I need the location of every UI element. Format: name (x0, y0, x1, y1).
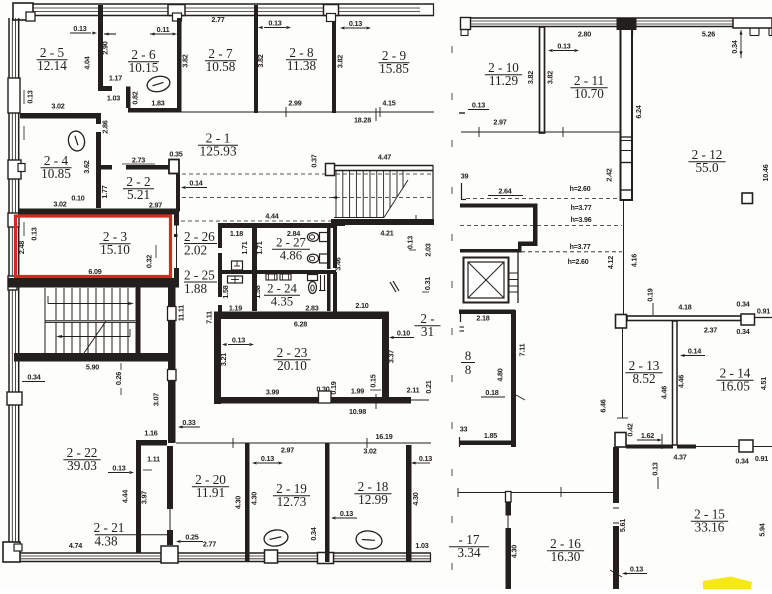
svg-text:0.13: 0.13 (630, 565, 643, 574)
svg-text:2.97: 2.97 (149, 201, 162, 210)
svg-text:1.19: 1.19 (229, 304, 242, 313)
svg-text:0.10: 0.10 (71, 194, 84, 203)
svg-text:2.97: 2.97 (493, 118, 506, 127)
svg-text:4.04: 4.04 (83, 56, 92, 69)
svg-text:4.46: 4.46 (677, 375, 686, 388)
svg-text:8.52: 8.52 (632, 371, 655, 386)
svg-text:3.82: 3.82 (256, 54, 265, 67)
svg-text:4.12: 4.12 (606, 256, 615, 269)
svg-text:4.86: 4.86 (280, 249, 303, 263)
svg-text:0.13: 0.13 (268, 19, 281, 28)
svg-text:2.37: 2.37 (704, 326, 717, 335)
svg-text:1.03: 1.03 (107, 94, 120, 103)
svg-text:4.15: 4.15 (382, 99, 395, 108)
svg-text:1.58: 1.58 (221, 285, 230, 298)
svg-text:39.03: 39.03 (67, 458, 97, 473)
svg-text:3.46: 3.46 (334, 257, 343, 270)
svg-text:4.80: 4.80 (496, 368, 505, 381)
svg-text:2.03: 2.03 (424, 243, 433, 256)
svg-text:0.33: 0.33 (182, 418, 195, 427)
svg-text:4.37: 4.37 (673, 453, 686, 462)
svg-text:10.58: 10.58 (206, 59, 236, 74)
svg-text:18.28: 18.28 (354, 116, 371, 125)
svg-text:1.17: 1.17 (109, 74, 122, 83)
svg-text:3.21: 3.21 (219, 353, 228, 366)
svg-text:10.85: 10.85 (41, 166, 71, 181)
svg-text:0.34: 0.34 (736, 327, 749, 336)
svg-text:h=3.77: h=3.77 (570, 244, 591, 251)
svg-text:3.62: 3.62 (82, 160, 91, 173)
svg-text:0.13: 0.13 (26, 90, 35, 103)
svg-text:12.73: 12.73 (277, 494, 307, 509)
svg-text:0.14: 0.14 (688, 347, 701, 356)
svg-text:10.15: 10.15 (129, 60, 159, 75)
svg-text:3.82: 3.82 (181, 54, 190, 67)
svg-text:16.19: 16.19 (376, 432, 393, 441)
svg-text:h=2.60: h=2.60 (570, 186, 591, 193)
svg-text:3.99: 3.99 (266, 388, 279, 397)
svg-text:5.21: 5.21 (127, 187, 150, 202)
svg-text:0.34: 0.34 (27, 373, 40, 382)
svg-text:16.30: 16.30 (551, 549, 581, 564)
svg-text:4.30: 4.30 (234, 496, 243, 509)
svg-text:0.34: 0.34 (735, 457, 748, 466)
svg-text:h=3.96: h=3.96 (571, 217, 592, 224)
svg-text:0.13: 0.13 (340, 509, 353, 518)
svg-text:0.13: 0.13 (261, 454, 274, 463)
svg-text:0.13: 0.13 (30, 227, 39, 240)
svg-text:4.47: 4.47 (378, 153, 391, 162)
svg-text:4.30: 4.30 (411, 492, 420, 505)
svg-text:10.98: 10.98 (349, 407, 366, 416)
svg-text:5.26: 5.26 (702, 30, 715, 39)
svg-text:2.99: 2.99 (288, 99, 301, 108)
svg-text:1.62: 1.62 (641, 431, 654, 440)
svg-text:0.13: 0.13 (557, 42, 570, 51)
svg-text:1.16: 1.16 (144, 429, 157, 438)
svg-text:2.83: 2.83 (305, 304, 318, 313)
svg-text:11.91: 11.91 (196, 485, 225, 500)
svg-text:11.29: 11.29 (489, 73, 519, 88)
svg-text:5.61: 5.61 (618, 519, 627, 532)
svg-text:6.09: 6.09 (88, 267, 101, 276)
svg-text:0.25: 0.25 (185, 533, 198, 542)
svg-text:0.21: 0.21 (424, 380, 433, 393)
svg-text:2 - 24: 2 - 24 (267, 282, 297, 296)
svg-text:1.85: 1.85 (484, 431, 497, 440)
svg-text:0.10: 0.10 (397, 329, 410, 338)
svg-text:4.30: 4.30 (250, 492, 259, 505)
svg-text:3.07: 3.07 (152, 393, 161, 406)
svg-text:2.90: 2.90 (101, 41, 110, 54)
svg-text:0.31: 0.31 (423, 277, 432, 290)
svg-text:4.21: 4.21 (380, 229, 393, 238)
svg-text:0.34: 0.34 (736, 300, 749, 309)
svg-text:31: 31 (421, 324, 434, 339)
svg-text:0.13: 0.13 (472, 101, 485, 110)
svg-text:2.77: 2.77 (203, 540, 216, 549)
svg-text:0.30: 0.30 (316, 385, 329, 394)
svg-text:2.42: 2.42 (605, 168, 614, 181)
svg-text:0.13: 0.13 (419, 454, 432, 463)
svg-text:12.99: 12.99 (358, 492, 388, 507)
svg-text:0.19: 0.19 (646, 288, 655, 301)
svg-text:16.05: 16.05 (720, 379, 750, 394)
svg-text:0.91: 0.91 (757, 307, 770, 316)
svg-text:4.46: 4.46 (660, 386, 669, 399)
svg-text:2.80: 2.80 (578, 30, 591, 39)
svg-text:2.48: 2.48 (17, 241, 26, 254)
svg-text:33.16: 33.16 (695, 520, 725, 535)
svg-text:15.85: 15.85 (379, 61, 409, 76)
svg-text:2.64: 2.64 (498, 187, 511, 196)
svg-text:2.77: 2.77 (211, 15, 224, 24)
svg-text:4.44: 4.44 (121, 490, 130, 503)
svg-text:2.02: 2.02 (184, 243, 207, 258)
svg-text:4.18: 4.18 (678, 303, 691, 312)
svg-text:11.11: 11.11 (177, 305, 186, 321)
svg-text:0.34: 0.34 (309, 527, 318, 540)
svg-text:3.82: 3.82 (526, 71, 535, 84)
svg-text:8: 8 (465, 348, 472, 363)
svg-text:2.10: 2.10 (355, 301, 368, 310)
svg-text:h=2.60: h=2.60 (568, 259, 589, 266)
svg-text:1.18: 1.18 (230, 229, 243, 238)
svg-text:6.24: 6.24 (634, 105, 643, 118)
svg-text:1.71: 1.71 (240, 241, 249, 254)
svg-text:33: 33 (460, 425, 468, 434)
svg-text:3.82: 3.82 (336, 55, 345, 68)
svg-text:125.93: 125.93 (199, 144, 236, 159)
svg-text:0.19: 0.19 (329, 381, 338, 394)
svg-text:0.13: 0.13 (73, 24, 86, 33)
svg-text:10.70: 10.70 (574, 86, 604, 101)
svg-text:0.42: 0.42 (626, 423, 635, 436)
svg-text:2.97: 2.97 (281, 446, 294, 455)
svg-text:3.82: 3.82 (546, 71, 555, 84)
svg-text:0.18: 0.18 (485, 388, 498, 397)
svg-text:6.28: 6.28 (294, 320, 307, 329)
svg-text:0.35: 0.35 (169, 150, 182, 159)
svg-text:4.35: 4.35 (271, 295, 293, 309)
svg-text:5.90: 5.90 (86, 363, 99, 372)
svg-text:2.84: 2.84 (287, 229, 300, 238)
svg-text:8: 8 (465, 362, 472, 377)
svg-text:39: 39 (461, 172, 469, 181)
svg-text:0.13: 0.13 (349, 19, 362, 28)
svg-text:6.46: 6.46 (599, 399, 608, 412)
svg-text:1.58: 1.58 (253, 285, 262, 298)
svg-text:12.14: 12.14 (37, 58, 67, 73)
svg-text:1.11: 1.11 (147, 455, 160, 464)
svg-text:3.97: 3.97 (140, 491, 149, 504)
svg-text:4.38: 4.38 (94, 534, 117, 549)
svg-text:11.38: 11.38 (287, 58, 317, 73)
svg-text:5.94: 5.94 (758, 523, 767, 536)
svg-text:0.26: 0.26 (114, 372, 123, 385)
svg-text:0.32: 0.32 (145, 255, 154, 268)
svg-text:2.18: 2.18 (476, 314, 489, 323)
svg-text:3.02: 3.02 (363, 447, 376, 456)
svg-text:7.11: 7.11 (518, 343, 527, 356)
svg-text:1.77: 1.77 (100, 185, 109, 198)
svg-text:55.0: 55.0 (695, 160, 718, 175)
svg-text:0.13: 0.13 (651, 462, 660, 475)
svg-text:0.82: 0.82 (131, 91, 140, 104)
svg-text:0.13: 0.13 (406, 236, 415, 249)
svg-text:0.13: 0.13 (112, 464, 125, 473)
svg-text:3.02: 3.02 (53, 200, 66, 209)
svg-text:0.13: 0.13 (232, 336, 245, 345)
svg-text:0.14: 0.14 (189, 179, 202, 188)
svg-text:2.11: 2.11 (407, 386, 420, 395)
svg-text:1.83: 1.83 (151, 99, 164, 108)
svg-text:0.15: 0.15 (369, 374, 378, 387)
svg-text:15.10: 15.10 (100, 242, 130, 257)
svg-text:7.11: 7.11 (205, 311, 214, 324)
svg-text:4.44: 4.44 (265, 212, 278, 221)
svg-text:0.91: 0.91 (755, 454, 768, 463)
svg-text:4.30: 4.30 (510, 545, 519, 558)
svg-text:2.73: 2.73 (132, 156, 145, 165)
svg-text:4.74: 4.74 (69, 541, 82, 550)
svg-text:1.88: 1.88 (184, 281, 207, 296)
svg-text:3.34: 3.34 (457, 545, 480, 560)
svg-text:1.99: 1.99 (351, 387, 364, 396)
svg-text:0.11: 0.11 (157, 25, 170, 34)
svg-text:4.51: 4.51 (759, 377, 768, 390)
svg-text:3.02: 3.02 (51, 102, 64, 111)
svg-text:10.46: 10.46 (761, 164, 770, 181)
svg-text:h=3.77: h=3.77 (571, 205, 592, 212)
svg-text:1.71: 1.71 (255, 241, 264, 254)
svg-text:0.37: 0.37 (310, 154, 319, 167)
svg-text:2.86: 2.86 (101, 120, 110, 133)
svg-text:3.37: 3.37 (387, 350, 396, 363)
svg-text:0.34: 0.34 (730, 40, 739, 53)
svg-text:4.16: 4.16 (630, 254, 639, 267)
svg-text:20.10: 20.10 (277, 358, 307, 373)
svg-text:1.03: 1.03 (415, 541, 428, 550)
